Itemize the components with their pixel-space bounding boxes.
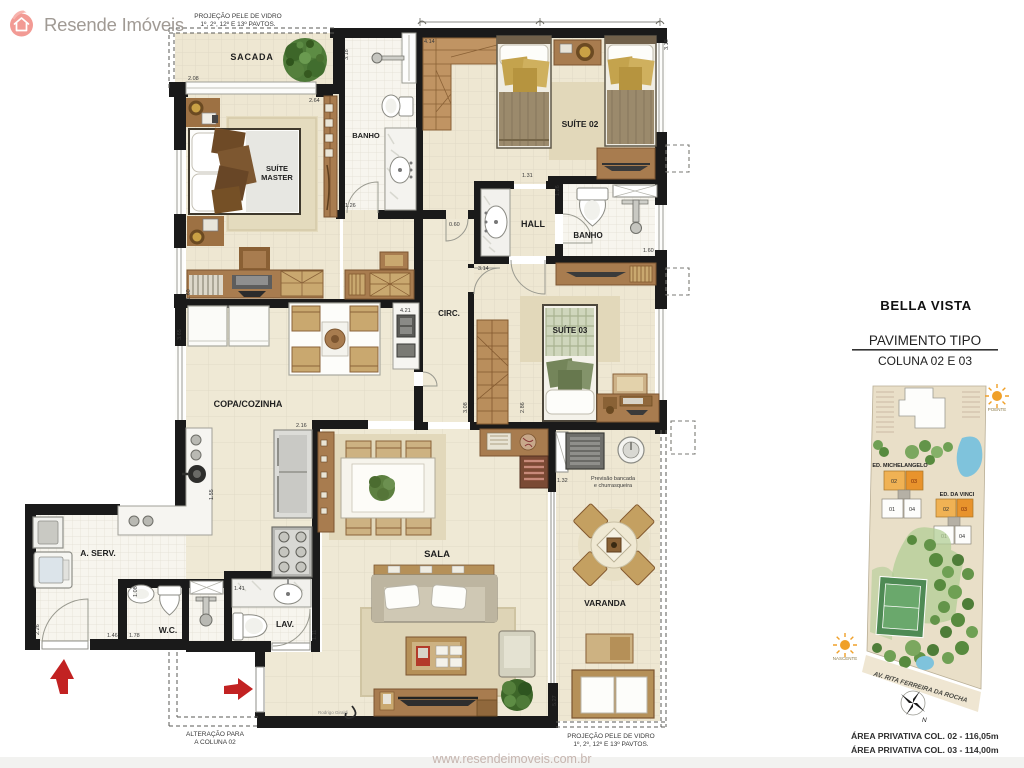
svg-text:2.86: 2.86 <box>520 402 526 413</box>
svg-text:1.60: 1.60 <box>186 289 192 300</box>
svg-text:03: 03 <box>911 479 917 485</box>
svg-text:1.60: 1.60 <box>643 248 654 254</box>
svg-text:SACADA: SACADA <box>230 52 273 62</box>
svg-text:Previsão bancada: Previsão bancada <box>591 476 636 482</box>
svg-text:COPA/COZINHA: COPA/COZINHA <box>214 399 283 409</box>
svg-text:3.18: 3.18 <box>344 49 350 60</box>
svg-text:CIRC.: CIRC. <box>438 309 460 318</box>
svg-text:1.11: 1.11 <box>312 630 318 640</box>
svg-text:3.18: 3.18 <box>664 39 670 50</box>
svg-text:MASTER: MASTER <box>261 173 293 182</box>
svg-text:ÁREA PRIVATIVA COL. 03 - 114,0: ÁREA PRIVATIVA COL. 03 - 114,00m <box>851 745 999 755</box>
svg-text:BANHO: BANHO <box>352 131 380 140</box>
svg-text:2.16: 2.16 <box>296 423 307 429</box>
svg-text:ED. DA VINCI: ED. DA VINCI <box>940 492 975 498</box>
svg-text:4.14: 4.14 <box>424 39 435 45</box>
svg-text:1.41: 1.41 <box>234 586 245 592</box>
svg-text:1.55: 1.55 <box>209 489 215 500</box>
svg-text:SALA: SALA <box>424 549 450 560</box>
svg-text:Resende Imóveis: Resende Imóveis <box>44 14 184 35</box>
svg-text:4.21: 4.21 <box>400 308 411 314</box>
svg-text:SUÍTE 03: SUÍTE 03 <box>553 326 588 335</box>
svg-text:ALTERAÇÃO PARA: ALTERAÇÃO PARA <box>186 729 245 738</box>
svg-text:PROJEÇÃO PELE DE VIDRO: PROJEÇÃO PELE DE VIDRO <box>567 731 654 740</box>
svg-text:A COLUNA 02: A COLUNA 02 <box>194 739 236 746</box>
svg-text:PROJEÇÃO PELE DE VIDRO: PROJEÇÃO PELE DE VIDRO <box>194 11 281 20</box>
svg-text:e churrasqueira: e churrasqueira <box>594 483 633 489</box>
svg-text:BELLA VISTA: BELLA VISTA <box>880 298 972 313</box>
svg-text:1.08: 1.08 <box>133 586 139 597</box>
svg-text:ÁREA PRIVATIVA COL. 02 - 116,0: ÁREA PRIVATIVA COL. 02 - 116,05m <box>851 731 999 741</box>
svg-text:LAV.: LAV. <box>276 619 294 629</box>
svg-text:01: 01 <box>889 507 895 513</box>
svg-text:POENTE: POENTE <box>988 407 1007 412</box>
svg-text:1.78: 1.78 <box>129 633 140 639</box>
svg-text:SUÍTE: SUÍTE <box>266 164 288 173</box>
svg-text:5.27: 5.27 <box>552 695 558 706</box>
svg-text:1º, 2º, 12º E 13º PAVTOS.: 1º, 2º, 12º E 13º PAVTOS. <box>573 741 648 748</box>
svg-text:A. SERV.: A. SERV. <box>80 548 115 558</box>
svg-text:2.26: 2.26 <box>35 624 41 635</box>
svg-text:www.resendeimoveis.com.br: www.resendeimoveis.com.br <box>431 752 591 766</box>
svg-text:04: 04 <box>959 534 965 540</box>
svg-text:1.31: 1.31 <box>522 173 533 179</box>
svg-text:1.32: 1.32 <box>557 478 568 484</box>
svg-text:W.C.: W.C. <box>159 625 177 635</box>
svg-text:0.60: 0.60 <box>449 222 460 228</box>
svg-text:2.64: 2.64 <box>309 98 320 104</box>
svg-text:1.26: 1.26 <box>555 185 561 196</box>
svg-text:02: 02 <box>943 507 949 513</box>
svg-text:BANHO: BANHO <box>573 231 602 240</box>
svg-text:VARANDA: VARANDA <box>584 598 626 608</box>
svg-text:03: 03 <box>961 507 967 513</box>
svg-text:HALL: HALL <box>521 219 545 229</box>
svg-text:3.14: 3.14 <box>478 266 489 272</box>
svg-text:1.46: 1.46 <box>107 633 118 639</box>
svg-text:3.65: 3.65 <box>177 329 183 340</box>
svg-text:1.26: 1.26 <box>345 203 356 209</box>
svg-text:Rodrigo Giraldi: Rodrigo Giraldi <box>318 710 348 715</box>
svg-text:NASCENTE: NASCENTE <box>833 656 858 661</box>
svg-text:2.08: 2.08 <box>188 76 199 82</box>
svg-text:1º, 2º, 12º E 13º PAVTOS.: 1º, 2º, 12º E 13º PAVTOS. <box>200 21 275 28</box>
svg-text:3.08: 3.08 <box>463 402 469 413</box>
svg-text:PAVIMENTO TIPO: PAVIMENTO TIPO <box>869 333 981 348</box>
svg-text:04: 04 <box>909 507 915 513</box>
svg-text:02: 02 <box>891 479 897 485</box>
svg-text:SUÍTE 02: SUÍTE 02 <box>562 119 599 129</box>
svg-text:N: N <box>922 717 927 724</box>
svg-text:ED. MICHELANGELO: ED. MICHELANGELO <box>872 463 928 469</box>
svg-text:COLUNA 02 E 03: COLUNA 02 E 03 <box>878 354 972 368</box>
